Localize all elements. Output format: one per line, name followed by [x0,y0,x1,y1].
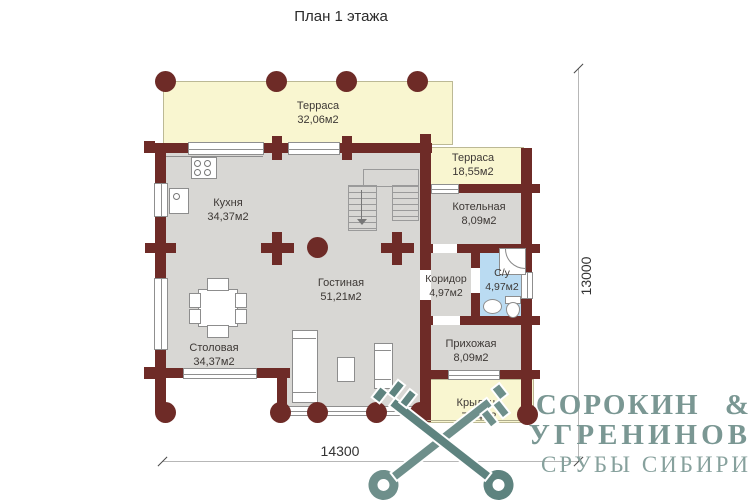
log-joint [145,243,176,253]
window [154,278,168,350]
room-area: 34,37м2 [168,210,288,224]
chair-icon [189,293,201,308]
stove-burner [204,160,211,167]
room-name: Терраса [423,151,523,165]
room-label-boiler: Котельная 8,09м2 [429,200,529,228]
door-opening [433,316,460,325]
room-name: Гостиная [281,276,401,290]
room-area: 18,55м2 [423,165,523,179]
room-label-bathroom: С/у 4,97м2 [472,266,532,294]
stairs-icon [348,168,418,230]
room-area: 4,97м2 [411,286,481,300]
room-label-terrace-top: Терраса 32,06м2 [258,99,378,127]
column [266,71,287,92]
chair-icon [207,325,229,338]
room-name: Терраса [258,99,378,113]
window [154,183,168,217]
room-area: 34,37м2 [154,355,274,369]
room-label-living: Гостиная 51,21м2 [281,276,401,304]
log-joint [342,136,352,160]
log-joint [272,136,282,160]
room-area: 8,09м2 [429,214,529,228]
log-joint [261,243,294,253]
room-label-terrace-right: Терраса 18,55м2 [423,151,523,179]
chair-icon [235,309,247,324]
column [307,237,328,258]
room-name: Прихожая [421,337,521,351]
room-area: 32,06м2 [258,113,378,127]
sofa-line [374,350,391,351]
stove-burner [204,169,211,176]
floor-plan-canvas: План 1 этажа [0,0,753,502]
room-name: Кухня [168,196,288,210]
door-opening [433,244,457,253]
room-area: 4,97м2 [472,280,532,294]
room-name: С/у [472,266,532,280]
sofa-line [292,338,316,339]
stairs-arrow [361,190,362,220]
stairs-flight [392,185,419,221]
column [270,402,291,423]
room-label-hallway: Прихожая 8,09м2 [421,337,521,365]
room-area: 8,09м2 [421,351,521,365]
stove-burner [194,160,201,167]
log-joint [381,243,414,253]
crossed-keys-icon [346,376,536,502]
room-label-kitchen: Кухня 34,37м2 [168,196,288,224]
room-label-corridor: Коридор 4,97м2 [411,272,481,300]
window [183,368,257,379]
plan-title: План 1 этажа [141,8,541,25]
window [431,184,459,194]
window [288,142,340,155]
column [155,71,176,92]
room-name: Котельная [429,200,529,214]
stove-burner [194,169,201,176]
window [188,142,264,155]
room-area: 51,21м2 [281,290,401,304]
stairs-arrowhead [357,219,367,225]
chair-icon [235,293,247,308]
room-label-dining: Столовая 34,37м2 [154,341,274,369]
column [336,71,357,92]
sink-icon [483,299,502,314]
chair-icon [189,309,201,324]
column [155,402,176,423]
chair-icon [207,278,229,291]
room-name: Столовая [154,341,274,355]
room-name: Коридор [411,272,481,286]
log-joint [144,141,155,153]
dimension-height-label: 13000 [578,246,594,306]
column [307,402,328,423]
dining-table-icon [198,289,238,327]
sofa-line [292,392,316,393]
column [407,71,428,92]
